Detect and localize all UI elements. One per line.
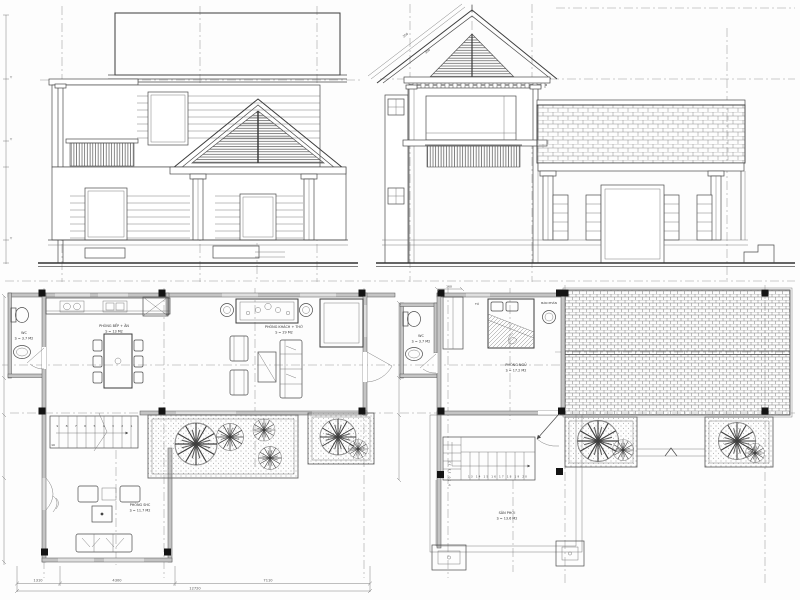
wc-first-label: WC — [418, 334, 424, 338]
wc-label: WC — [21, 331, 27, 335]
wc-first-area: S = 3.7 M2 — [412, 340, 431, 344]
altar-cabinet — [236, 299, 298, 323]
wardrobe-label: TỦ — [474, 301, 479, 306]
wc-area: S = 3.7 M2 — [15, 337, 34, 341]
dim-seg-3: 7110 — [263, 579, 273, 583]
kitchen-dining-area: S = 13 M2 — [105, 330, 123, 334]
bedroom-label: PHÒNG NGỦ — [505, 362, 527, 367]
plan-doors — [27, 347, 392, 382]
living-furniture — [221, 299, 364, 398]
armchair — [230, 336, 248, 361]
stair-run-numbers-first: 13 14 15 16 17 18 19 20 — [468, 475, 528, 479]
family-room-area: S = 11.7 M2 — [130, 509, 151, 513]
kitchen-dining-label: PHÒNG BẾP + ĂN — [99, 322, 129, 328]
stair-first: 13 14 15 16 17 18 19 20 9 10 11 12 — [443, 437, 535, 486]
living-worship-label: PHÒNG KHÁCH + THỜ — [265, 324, 303, 329]
dim-seg-1: 1310 — [33, 579, 43, 583]
roof-plan — [563, 288, 792, 417]
living-worship-area: S = 29 M2 — [275, 331, 293, 335]
stair-ground: 9 8 7 6 5 4 3 2 1 10 — [50, 413, 138, 451]
side-elevation: 250 300 — [368, 4, 795, 267]
level-marker: ▽ — [10, 137, 13, 141]
bedroom-furniture — [443, 297, 556, 349]
stair-run-numbers-ground: 9 8 7 6 5 4 3 2 1 — [56, 424, 135, 428]
armchair — [230, 370, 248, 395]
family-room-furniture — [53, 486, 140, 552]
drying-yard-label: SÂN PHƠI — [499, 510, 516, 515]
side-door — [601, 185, 664, 263]
dining-set — [93, 334, 143, 388]
front-elevation: ▽ ▽ ▽ — [3, 13, 358, 267]
planter-d — [705, 417, 773, 467]
side-rear-wall — [385, 95, 408, 263]
front-main-roof — [115, 13, 340, 75]
side-long-roof — [537, 105, 745, 163]
roof-slope-dim-lower: 300 — [424, 48, 431, 55]
ground-floor-plan: 9 8 7 6 5 4 3 2 1 10 WC S = 3.7 M2 PHÒNG… — [2, 290, 395, 566]
planter-b — [308, 413, 374, 464]
planter-c — [565, 417, 637, 467]
front-upper-window — [148, 92, 188, 145]
level-marker: ▽ — [10, 75, 13, 79]
roof-slope-dim-upper: 250 — [402, 32, 409, 39]
dim-total: 12720 — [189, 587, 201, 591]
kitchen-counter — [46, 297, 170, 316]
bottom-dimension-lines: 1310 4300 7110 12720 — [15, 566, 372, 593]
stair-landing-number: 10 — [51, 443, 55, 447]
dim-seg-2: 4300 — [112, 579, 122, 583]
walkway — [637, 448, 705, 456]
level-marker: ▽ — [10, 236, 13, 240]
drawing-sheet: ▽ ▽ ▽ 250 300 — [0, 0, 800, 600]
side-steps — [744, 245, 774, 263]
top-dim-160: 160 — [446, 285, 452, 289]
side-balcony-railing — [427, 146, 520, 167]
front-balcony-railing — [70, 143, 134, 166]
bedroom-area: S = 17.2 M2 — [506, 369, 527, 373]
dressing-table-label: BÀN PHẤN — [541, 300, 557, 305]
family-room-label: PHÒNG SHC — [130, 502, 151, 507]
architectural-drawing: ▽ ▽ ▽ 250 300 — [0, 0, 800, 600]
dressing-stool — [543, 311, 556, 324]
drying-yard-area: S = 13.6 M2 — [497, 517, 518, 521]
stair-flight-numbers-first: 9 10 11 12 — [448, 460, 452, 486]
planter-a — [148, 415, 298, 478]
bay-platform — [320, 299, 363, 347]
first-floor-plan: 13 14 15 16 17 18 19 20 9 10 11 12 WC S … — [397, 285, 792, 571]
drying-yard — [430, 415, 584, 570]
front-door — [85, 188, 127, 240]
